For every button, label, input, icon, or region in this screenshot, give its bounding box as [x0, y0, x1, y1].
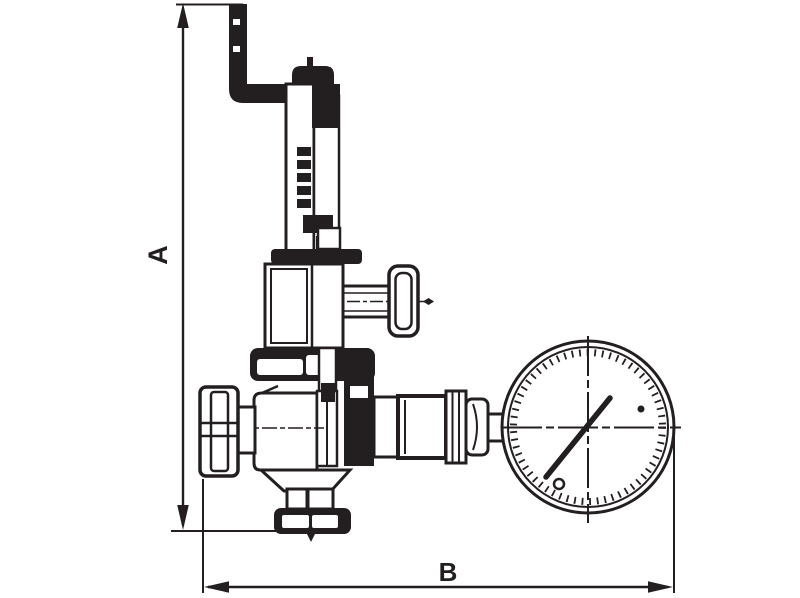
valve-dimension-diagram: A B — [0, 0, 800, 598]
pipe-tube-junction — [312, 84, 340, 128]
pipe-highlight-2 — [233, 46, 240, 52]
pipe-highlight-1 — [233, 19, 240, 25]
outlet-flange-slot-left — [282, 515, 309, 528]
gauge-connection — [374, 391, 504, 463]
body-left-shell — [250, 393, 317, 470]
tee-column — [344, 352, 374, 466]
dimension-b-label: B — [439, 557, 458, 587]
bonnet-top-bracket — [318, 228, 340, 249]
dimension-b-arrow-right — [648, 581, 673, 593]
dimension-b-arrow-left — [204, 581, 229, 593]
outlet-flange-slot-right — [312, 515, 338, 528]
dimension-a-arrow-up — [177, 3, 189, 28]
dimension-a-arrow-down — [177, 505, 189, 530]
cap-nut — [292, 66, 334, 85]
stem-tip — [307, 57, 313, 67]
lower-flange-slot-left — [257, 359, 303, 375]
centerline-diamond — [423, 298, 434, 305]
outlet-neck-left — [287, 489, 307, 509]
gauge-dial-dot — [638, 406, 645, 413]
inlet-cap — [200, 387, 238, 476]
bonnet-top-flange — [271, 249, 362, 264]
body-neck-block — [321, 383, 335, 402]
tee-column-slot — [350, 386, 368, 398]
pressure-gauge — [502, 336, 681, 523]
outlet-tick — [307, 534, 315, 542]
dimension-a-label: A — [143, 245, 173, 265]
side-knob — [389, 266, 418, 336]
inlet-stub — [238, 407, 255, 453]
bonnet-body — [265, 264, 343, 348]
outlet-neck-right — [308, 489, 333, 509]
technical-drawing-canvas: A B — [0, 0, 800, 598]
hex-section — [446, 391, 466, 463]
spring-housing — [286, 57, 340, 252]
gauge-stop-pin — [554, 479, 564, 489]
side-port — [343, 266, 434, 336]
inlet-port — [200, 387, 255, 476]
